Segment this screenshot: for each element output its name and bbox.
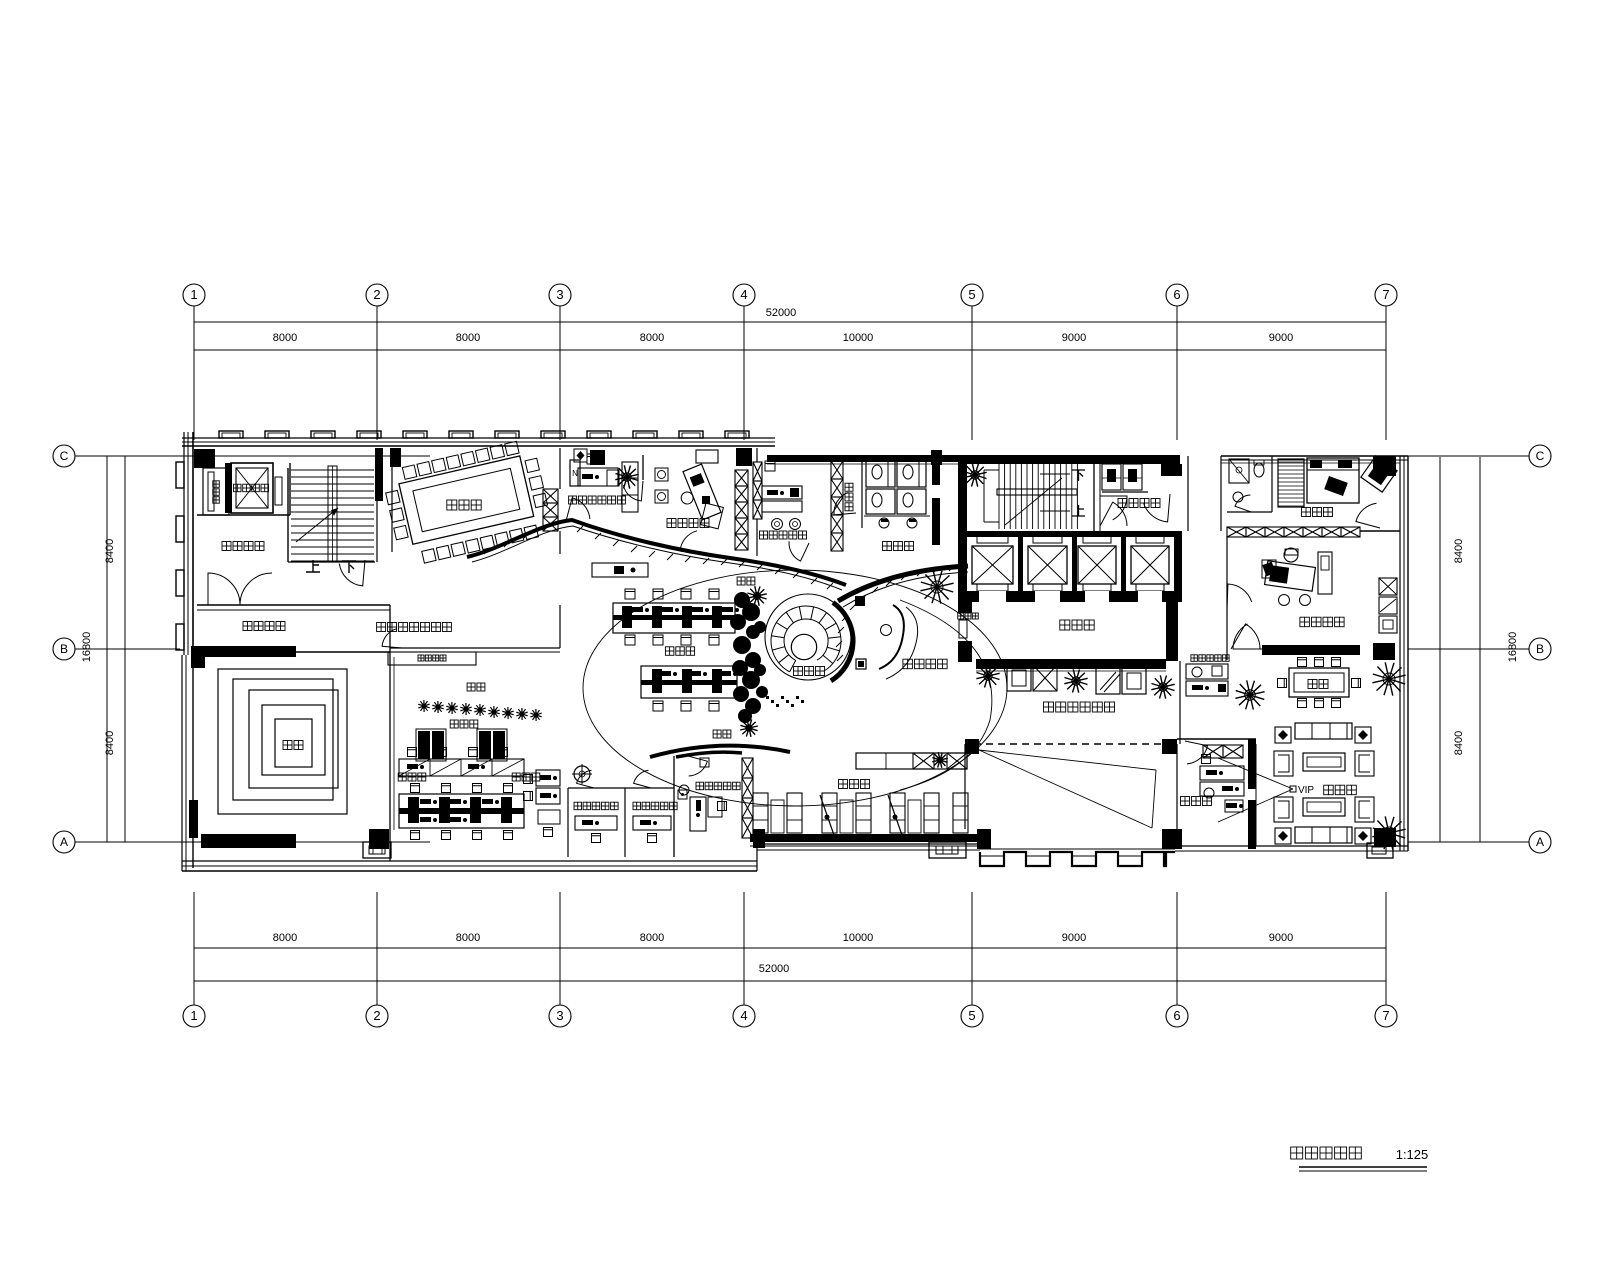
svg-text:7: 7	[1382, 287, 1389, 302]
svg-text:8000: 8000	[273, 932, 297, 944]
svg-text:8400: 8400	[1453, 539, 1465, 563]
svg-text:5: 5	[968, 287, 975, 302]
svg-text:8400: 8400	[1453, 731, 1465, 755]
svg-text:8000: 8000	[456, 332, 480, 344]
svg-text:8400: 8400	[104, 539, 116, 563]
svg-text:9000: 9000	[1269, 932, 1293, 944]
svg-text:1: 1	[190, 287, 197, 302]
svg-text:16800: 16800	[1507, 632, 1519, 663]
svg-text:VIP: VIP	[1298, 785, 1314, 796]
svg-text:A: A	[60, 835, 68, 849]
svg-text:16800: 16800	[81, 632, 93, 663]
svg-text:52000: 52000	[759, 963, 790, 975]
svg-text:1: 1	[190, 1008, 197, 1023]
svg-text:C: C	[1536, 449, 1545, 463]
svg-text:8000: 8000	[456, 932, 480, 944]
svg-text:A: A	[1536, 835, 1544, 849]
svg-text:B: B	[60, 642, 68, 656]
svg-text:C: C	[60, 449, 69, 463]
svg-text:10000: 10000	[843, 932, 874, 944]
svg-text:6: 6	[1173, 287, 1180, 302]
svg-text:2: 2	[373, 1008, 380, 1023]
svg-text:7: 7	[1382, 1008, 1389, 1023]
svg-text:B: B	[1536, 642, 1544, 656]
svg-text:8400: 8400	[104, 731, 116, 755]
svg-text:5: 5	[968, 1008, 975, 1023]
svg-text:52000: 52000	[766, 307, 797, 319]
svg-text:4: 4	[740, 287, 747, 302]
svg-text:8000: 8000	[640, 932, 664, 944]
svg-text:10000: 10000	[843, 332, 874, 344]
svg-text:8000: 8000	[640, 332, 664, 344]
svg-text:3: 3	[556, 287, 563, 302]
svg-text:9000: 9000	[1062, 332, 1086, 344]
svg-text:1:125: 1:125	[1396, 1147, 1429, 1162]
svg-text:9000: 9000	[1269, 332, 1293, 344]
svg-text:9000: 9000	[1062, 932, 1086, 944]
svg-text:2: 2	[373, 287, 380, 302]
svg-text:6: 6	[1173, 1008, 1180, 1023]
svg-text:8000: 8000	[273, 332, 297, 344]
svg-text:3: 3	[556, 1008, 563, 1023]
svg-text:4: 4	[740, 1008, 747, 1023]
svg-text:N: N	[572, 469, 578, 478]
